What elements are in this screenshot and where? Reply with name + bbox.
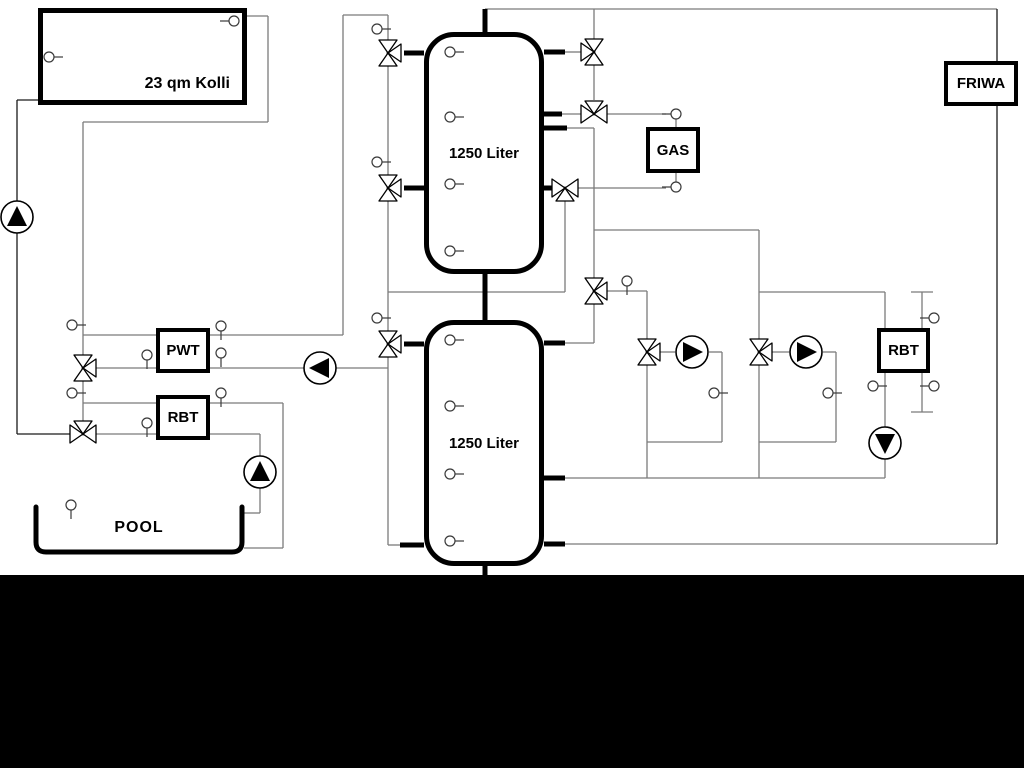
temp-sensor-icon xyxy=(44,52,63,62)
valve-center-dot xyxy=(593,113,596,116)
temp-sensor-icon xyxy=(709,388,728,398)
valve-center-dot xyxy=(387,187,390,190)
valve-center-dot xyxy=(387,52,390,55)
sensor-bulb xyxy=(445,246,455,256)
sensor-bulb xyxy=(823,388,833,398)
pump-icon xyxy=(790,336,822,368)
three-way-valve-icon xyxy=(581,101,607,123)
valve-center-dot xyxy=(387,343,390,346)
sensor-bulb xyxy=(929,313,939,323)
symbol-layer xyxy=(0,0,1024,575)
three-way-valve-icon xyxy=(379,40,401,66)
temp-sensor-icon xyxy=(920,381,939,391)
sensor-bulb xyxy=(929,381,939,391)
sensor-bulb xyxy=(216,348,226,358)
sensor-bulb xyxy=(622,276,632,286)
sensor-bulb xyxy=(445,536,455,546)
sensor-bulb xyxy=(216,321,226,331)
sensor-bulb xyxy=(67,320,77,330)
temp-sensor-icon xyxy=(220,16,239,26)
temp-sensor-icon xyxy=(372,313,391,323)
sensor-bulb xyxy=(445,469,455,479)
valve-center-dot xyxy=(593,51,596,54)
temp-sensor-icon xyxy=(216,348,226,367)
pump-icon xyxy=(1,201,33,233)
temp-sensor-icon xyxy=(67,320,86,330)
sensor-bulb xyxy=(671,109,681,119)
valve-center-dot xyxy=(758,351,761,354)
temp-sensor-icon xyxy=(622,276,632,295)
temp-sensor-icon xyxy=(662,182,681,192)
sensor-bulb xyxy=(445,401,455,411)
temp-sensor-icon xyxy=(445,335,464,345)
three-way-valve-icon xyxy=(581,39,603,65)
temp-sensor-icon xyxy=(868,381,887,391)
temp-sensor-icon xyxy=(372,24,391,34)
valve-center-dot xyxy=(82,433,85,436)
sensor-bulb xyxy=(372,157,382,167)
temp-sensor-icon xyxy=(445,246,464,256)
temp-sensor-icon xyxy=(823,388,842,398)
sensor-bulb xyxy=(44,52,54,62)
schematic-canvas: 23 qm Kolli 1250 Liter 1250 Liter PWT RB… xyxy=(0,0,1024,768)
three-way-valve-icon xyxy=(74,355,96,381)
sensor-bulb xyxy=(709,388,719,398)
temp-sensor-icon xyxy=(445,536,464,546)
valve-center-dot xyxy=(646,351,649,354)
sensor-bulb xyxy=(445,47,455,57)
temp-sensor-icon xyxy=(372,157,391,167)
temp-sensor-icon xyxy=(445,179,464,189)
temp-sensor-icon xyxy=(445,469,464,479)
sensor-bulb xyxy=(671,182,681,192)
three-way-valve-icon xyxy=(379,331,401,357)
temp-sensor-icon xyxy=(445,401,464,411)
temp-sensor-icon xyxy=(142,418,152,437)
pump-icon xyxy=(869,427,901,459)
temp-sensor-icon xyxy=(216,388,226,407)
valve-center-dot xyxy=(593,290,596,293)
temp-sensor-icon xyxy=(445,47,464,57)
three-way-valve-icon xyxy=(379,175,401,201)
sensor-bulb xyxy=(67,388,77,398)
three-way-valve-icon xyxy=(585,278,607,304)
temp-sensor-icon xyxy=(67,388,86,398)
pump-icon xyxy=(244,456,276,488)
temp-sensor-icon xyxy=(445,112,464,122)
sensor-bulb xyxy=(372,313,382,323)
sensor-bulb xyxy=(66,500,76,510)
temp-sensor-icon xyxy=(216,321,226,340)
sensor-bulb xyxy=(229,16,239,26)
three-way-valve-icon xyxy=(552,179,578,201)
sensor-bulb xyxy=(142,418,152,428)
sensor-bulb xyxy=(216,388,226,398)
sensor-bulb xyxy=(445,112,455,122)
bottom-black-band xyxy=(0,575,1024,768)
sensor-bulb xyxy=(868,381,878,391)
three-way-valve-icon xyxy=(70,421,96,443)
sensor-bulb xyxy=(445,179,455,189)
pool-basin-outline xyxy=(36,507,242,552)
temp-sensor-icon xyxy=(142,350,152,369)
temp-sensor-icon xyxy=(662,109,681,119)
sensor-bulb xyxy=(445,335,455,345)
valve-center-dot xyxy=(564,187,567,190)
three-way-valve-icon xyxy=(638,339,660,365)
valve-center-dot xyxy=(82,367,85,370)
pump-icon xyxy=(676,336,708,368)
sensor-bulb xyxy=(372,24,382,34)
pump-icon xyxy=(304,352,336,384)
three-way-valve-icon xyxy=(750,339,772,365)
temp-sensor-icon xyxy=(66,500,76,519)
temp-sensor-icon xyxy=(920,313,939,323)
sensor-bulb xyxy=(142,350,152,360)
